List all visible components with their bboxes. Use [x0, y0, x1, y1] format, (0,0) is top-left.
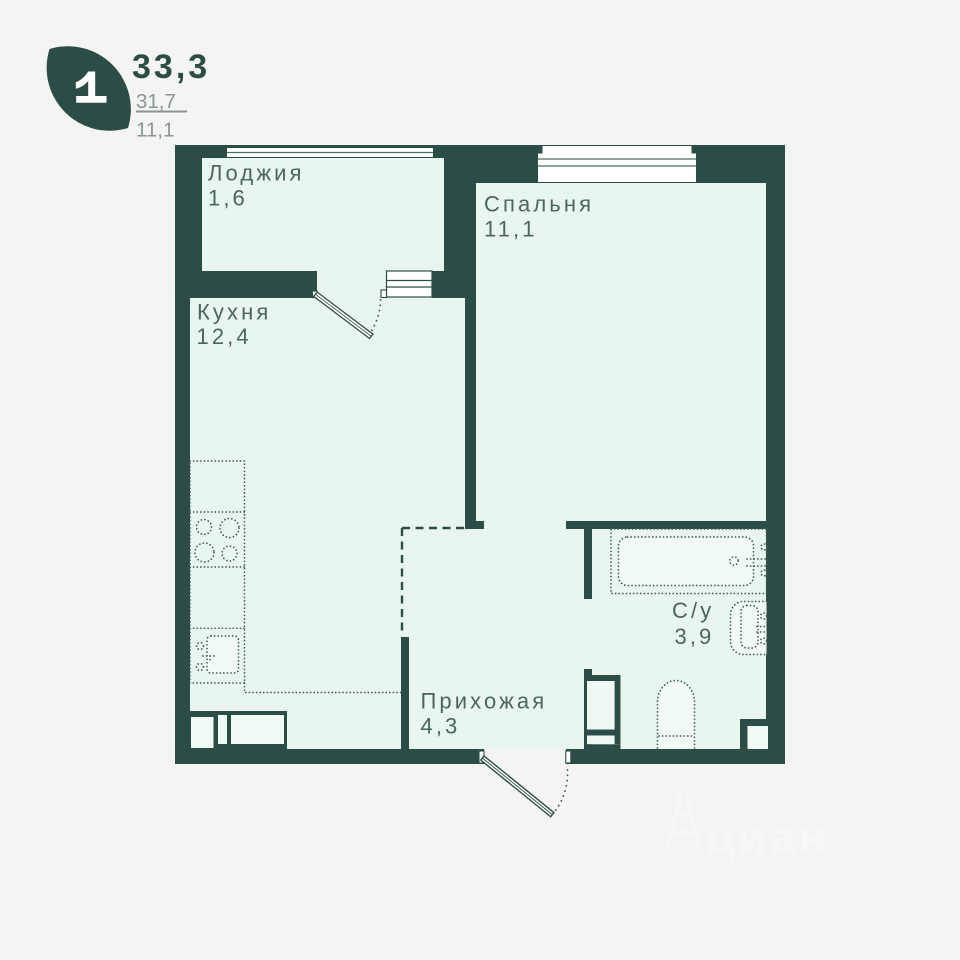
svg-text:циан: циан	[706, 810, 830, 863]
svg-text:С/у: С/у	[672, 598, 714, 623]
svg-text:Кухня: Кухня	[197, 300, 271, 325]
svg-text:33,3: 33,3	[132, 48, 210, 86]
svg-text:31,7: 31,7	[136, 90, 176, 113]
svg-text:3,9: 3,9	[675, 624, 715, 649]
svg-text:Спальня: Спальня	[484, 192, 594, 217]
svg-text:11,1: 11,1	[484, 217, 538, 242]
svg-text:1,6: 1,6	[208, 186, 248, 211]
svg-text:Лоджия: Лоджия	[208, 161, 305, 186]
svg-text:4,3: 4,3	[421, 714, 461, 739]
svg-text:Прихожая: Прихожая	[421, 689, 548, 714]
svg-text:11,1: 11,1	[136, 119, 174, 142]
svg-text:12,4: 12,4	[197, 324, 252, 349]
